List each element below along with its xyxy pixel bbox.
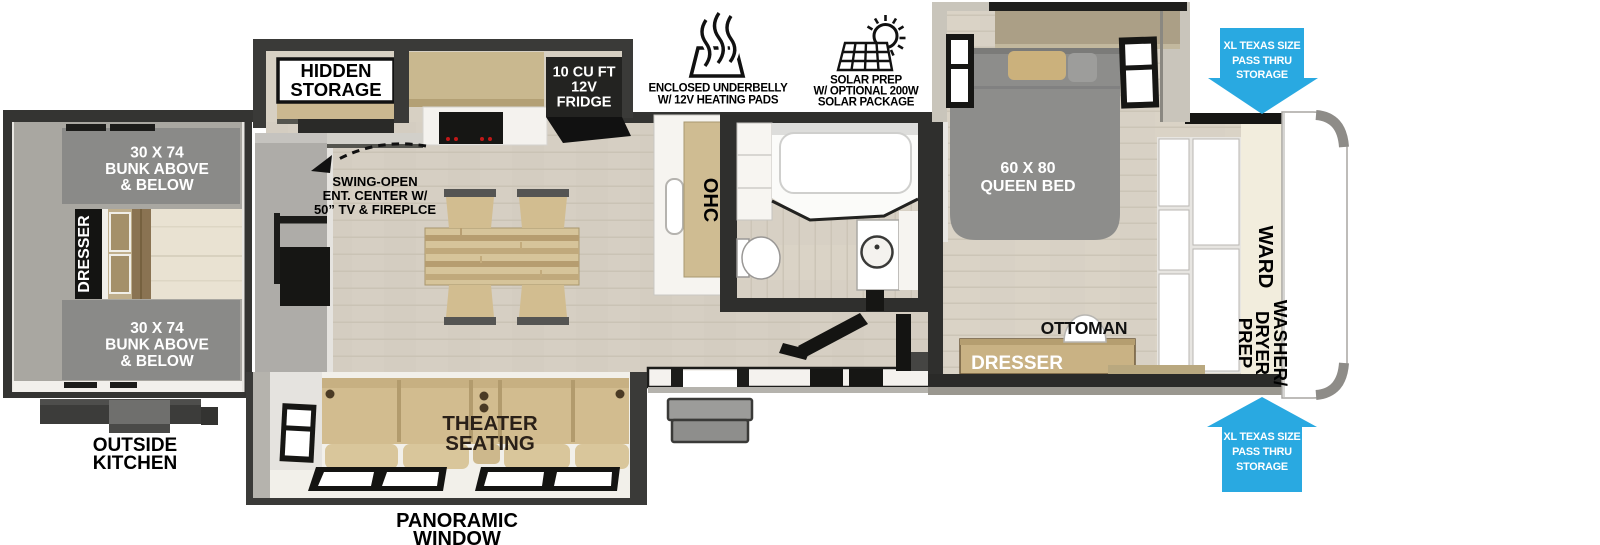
svg-text:STORAGE: STORAGE xyxy=(1236,461,1288,473)
svg-text:FRIDGE: FRIDGE xyxy=(557,95,612,111)
svg-text:& BELOW: & BELOW xyxy=(120,177,194,194)
svg-text:XL TEXAS SIZE: XL TEXAS SIZE xyxy=(1224,40,1301,52)
svg-text:STORAGE: STORAGE xyxy=(290,79,381,100)
svg-text:PREP: PREP xyxy=(1235,318,1256,368)
svg-text:& BELOW: & BELOW xyxy=(120,353,194,370)
svg-text:10 CU FT: 10 CU FT xyxy=(553,65,616,81)
svg-text:DRESSER: DRESSER xyxy=(76,215,93,293)
svg-text:WINDOW: WINDOW xyxy=(413,528,501,545)
svg-text:BUNK ABOVE: BUNK ABOVE xyxy=(105,161,209,178)
svg-text:WARD: WARD xyxy=(1254,226,1277,289)
svg-text:PASS THRU: PASS THRU xyxy=(1232,55,1292,67)
svg-text:ENT. CENTER W/: ENT. CENTER W/ xyxy=(323,188,428,203)
svg-text:60 X 80: 60 X 80 xyxy=(1000,160,1055,177)
svg-text:HIDDEN: HIDDEN xyxy=(301,60,372,81)
svg-text:30 X 74: 30 X 74 xyxy=(130,145,184,162)
svg-text:12V: 12V xyxy=(571,80,597,96)
svg-text:50” TV & FIREPLCE: 50” TV & FIREPLCE xyxy=(314,202,436,217)
svg-text:ENCLOSED UNDERBELLY: ENCLOSED UNDERBELLY xyxy=(649,83,789,95)
svg-text:QUEEN BED: QUEEN BED xyxy=(980,178,1075,195)
svg-text:30 X 74: 30 X 74 xyxy=(130,320,184,337)
svg-text:XL TEXAS SIZE: XL TEXAS SIZE xyxy=(1224,431,1301,443)
svg-text:PASS THRU: PASS THRU xyxy=(1232,446,1292,458)
svg-text:OHC: OHC xyxy=(699,178,721,222)
svg-text:SEATING: SEATING xyxy=(445,432,535,455)
svg-text:KITCHEN: KITCHEN xyxy=(93,453,177,474)
svg-text:W/ 12V HEATING PADS: W/ 12V HEATING PADS xyxy=(658,95,779,107)
svg-text:OTTOMAN: OTTOMAN xyxy=(1041,318,1128,338)
svg-text:SWING-OPEN: SWING-OPEN xyxy=(332,174,417,189)
svg-text:STORAGE: STORAGE xyxy=(1236,69,1288,81)
svg-text:BUNK ABOVE: BUNK ABOVE xyxy=(105,337,209,354)
svg-text:DRESSER: DRESSER xyxy=(971,353,1063,374)
svg-text:SOLAR PACKAGE: SOLAR PACKAGE xyxy=(818,97,915,109)
